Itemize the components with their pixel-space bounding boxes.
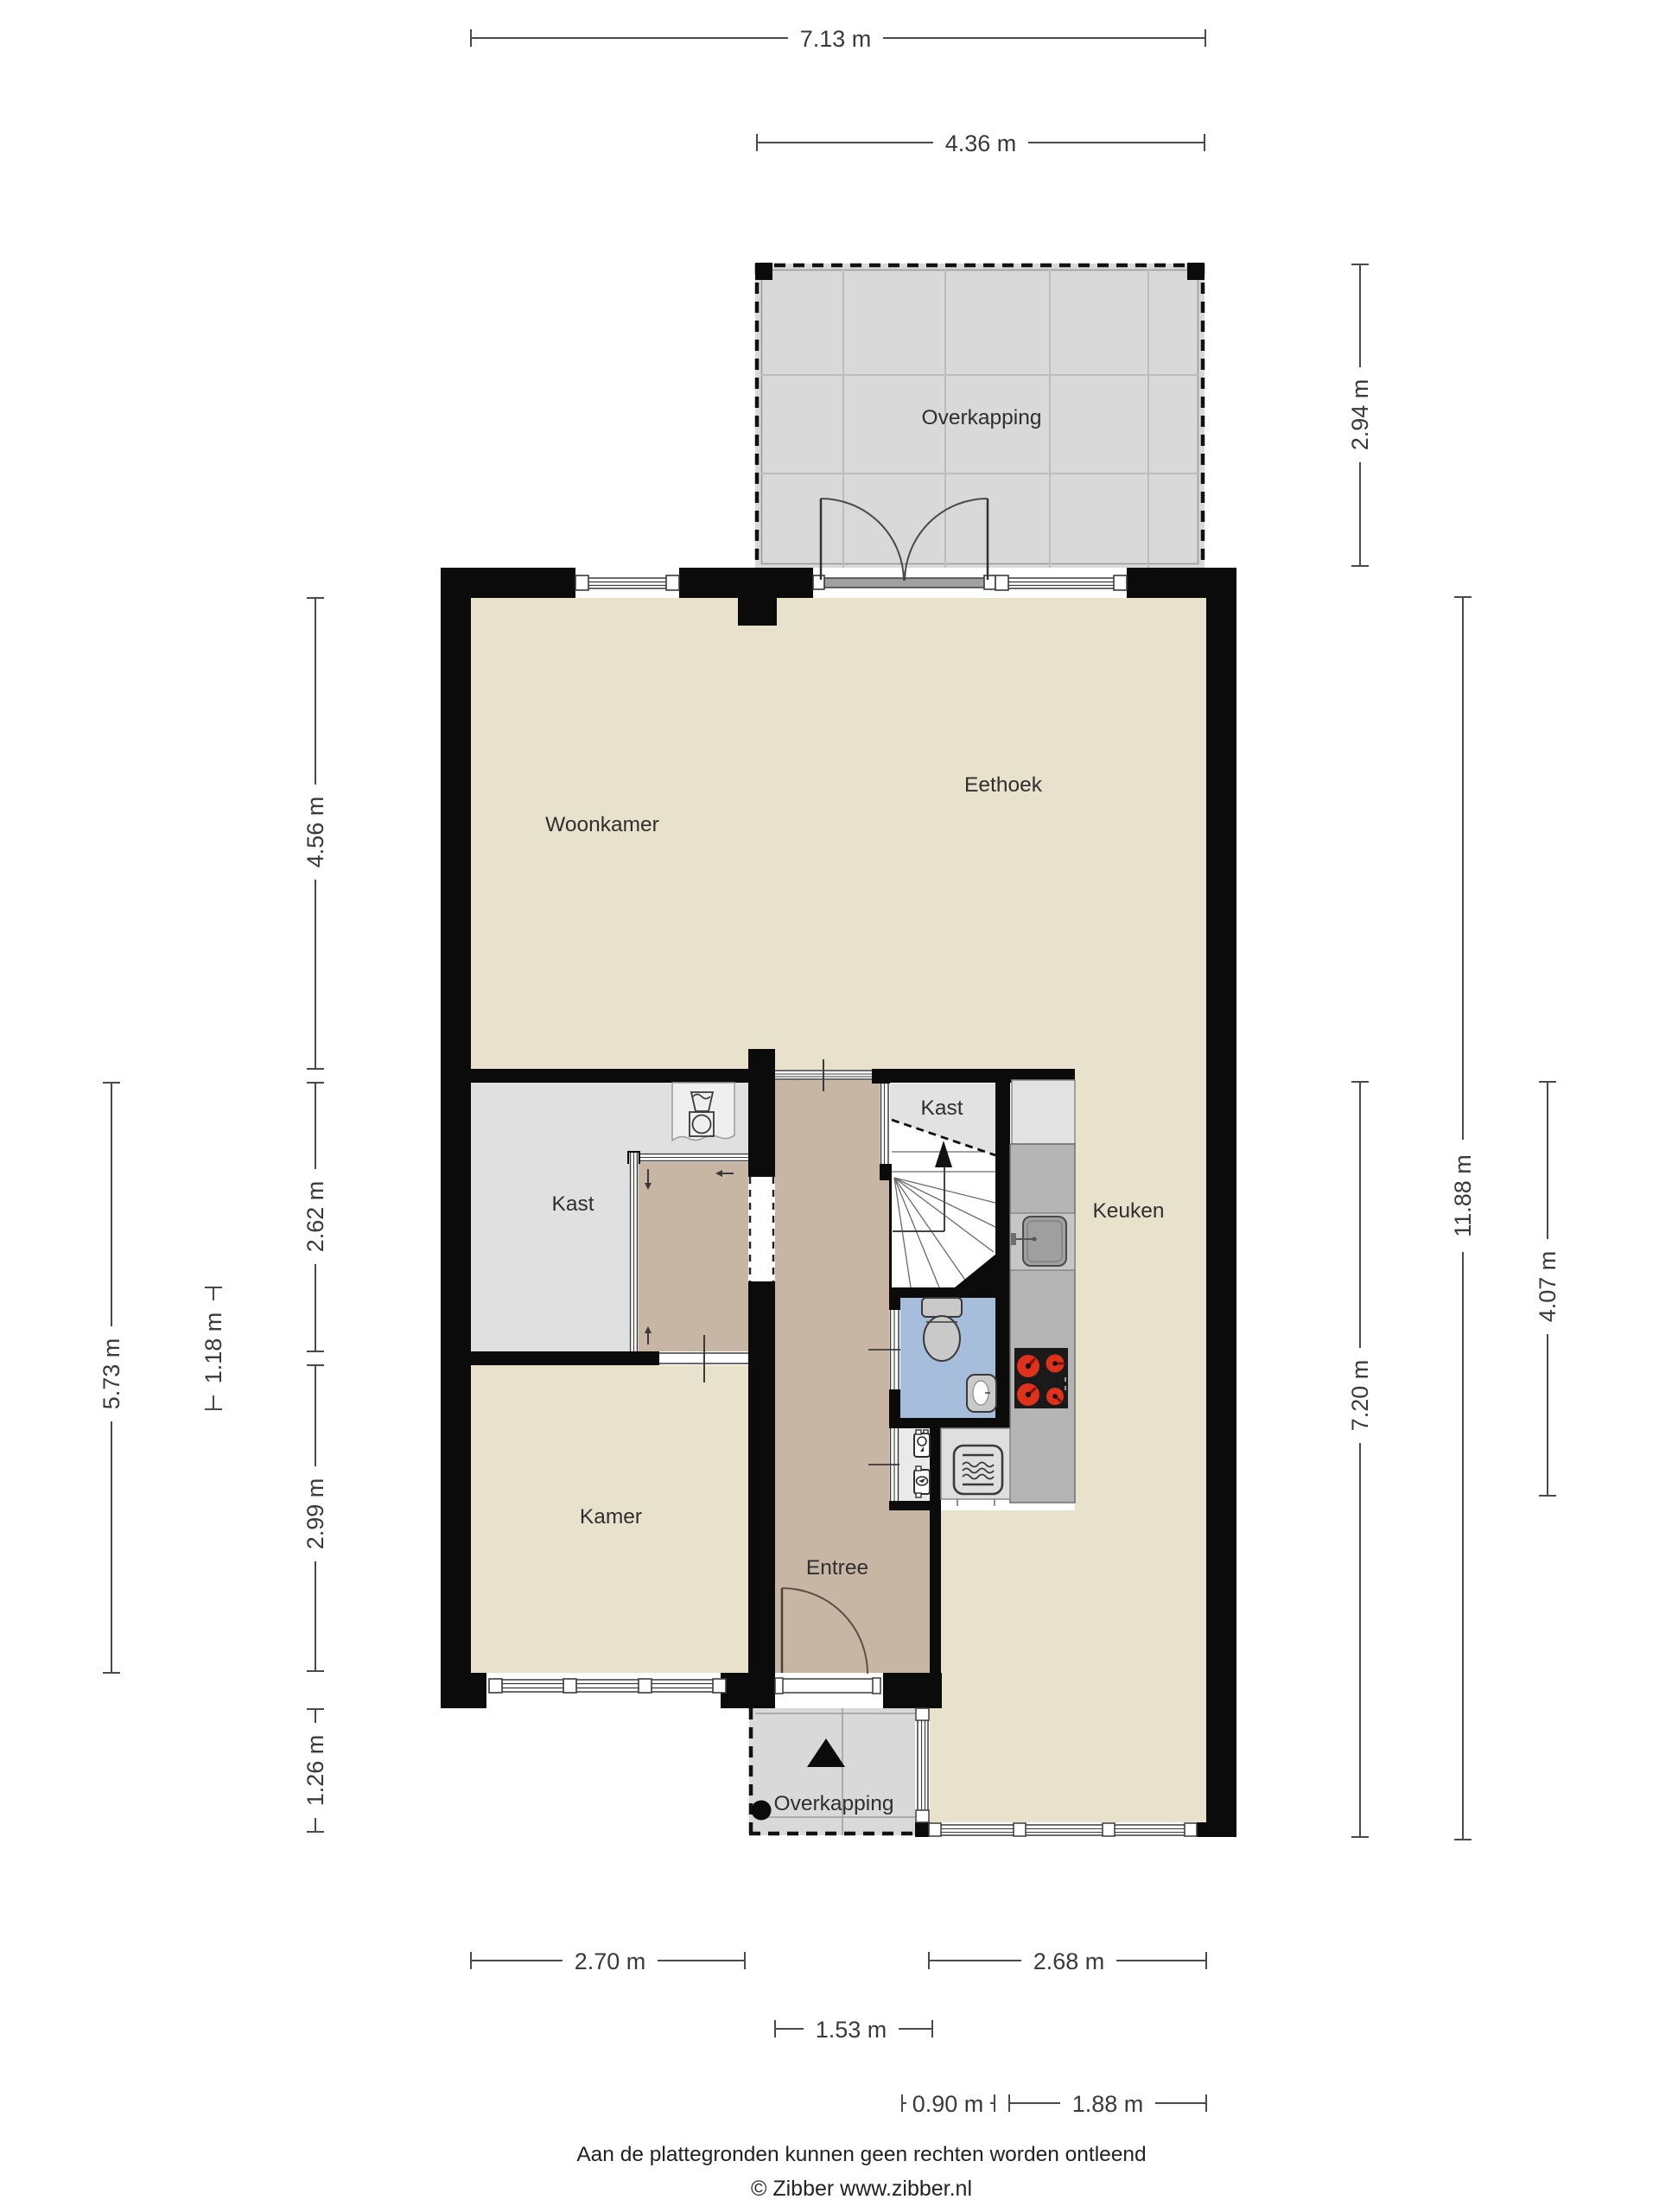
svg-text:Eethoek: Eethoek (964, 773, 1043, 797)
svg-text:1.18 m: 1.18 m (200, 1313, 226, 1384)
svg-text:2.70 m: 2.70 m (575, 1948, 646, 1974)
svg-text:2.68 m: 2.68 m (1033, 1948, 1105, 1974)
svg-text:1.26 m: 1.26 m (302, 1735, 328, 1807)
svg-text:Overkapping: Overkapping (774, 1792, 894, 1815)
svg-text:2.62 m: 2.62 m (302, 1181, 328, 1253)
svg-text:Keuken: Keuken (1092, 1199, 1164, 1223)
svg-text:7.20 m: 7.20 m (1347, 1360, 1373, 1432)
svg-text:1.53 m: 1.53 m (816, 2017, 887, 2043)
svg-text:4.36 m: 4.36 m (945, 130, 1017, 156)
svg-text:11.88 m: 11.88 m (1450, 1154, 1476, 1237)
svg-text:4.56 m: 4.56 m (302, 797, 328, 868)
svg-text:7.13 m: 7.13 m (800, 26, 872, 52)
svg-text:Kast: Kast (551, 1192, 594, 1216)
svg-text:Woonkamer: Woonkamer (545, 813, 659, 836)
svg-text:Entree: Entree (806, 1556, 868, 1580)
svg-text:Overkapping: Overkapping (922, 406, 1042, 429)
svg-text:Kamer: Kamer (580, 1505, 642, 1529)
svg-text:5.73 m: 5.73 m (99, 1338, 124, 1410)
svg-text:2.94 m: 2.94 m (1347, 379, 1373, 451)
svg-text:Kast: Kast (920, 1096, 963, 1120)
svg-text:4.07 m: 4.07 m (1535, 1251, 1560, 1323)
svg-text:0.90 m: 0.90 m (912, 2091, 984, 2117)
svg-text:Aan de plattegronden kunnen ge: Aan de plattegronden kunnen geen rechten… (576, 2143, 1146, 2166)
svg-text:© Zibber www.zibber.nl: © Zibber www.zibber.nl (751, 2177, 972, 2201)
svg-text:2.99 m: 2.99 m (302, 1478, 328, 1550)
svg-text:1.88 m: 1.88 m (1072, 2091, 1144, 2117)
